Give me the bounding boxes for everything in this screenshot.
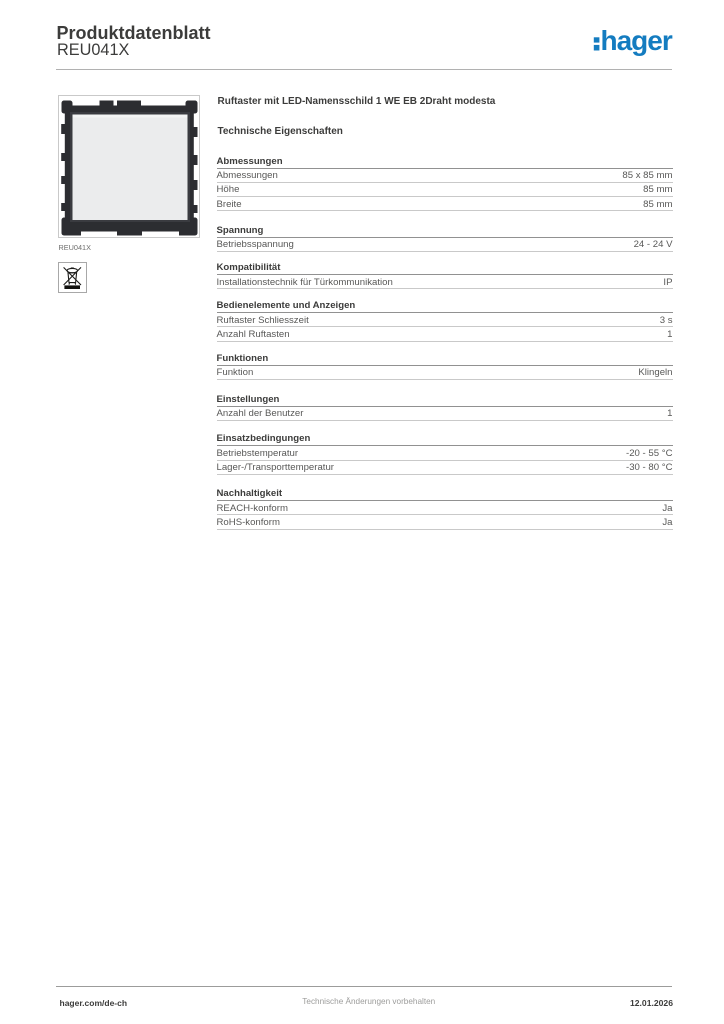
svg-text:hager: hager [601,26,673,56]
